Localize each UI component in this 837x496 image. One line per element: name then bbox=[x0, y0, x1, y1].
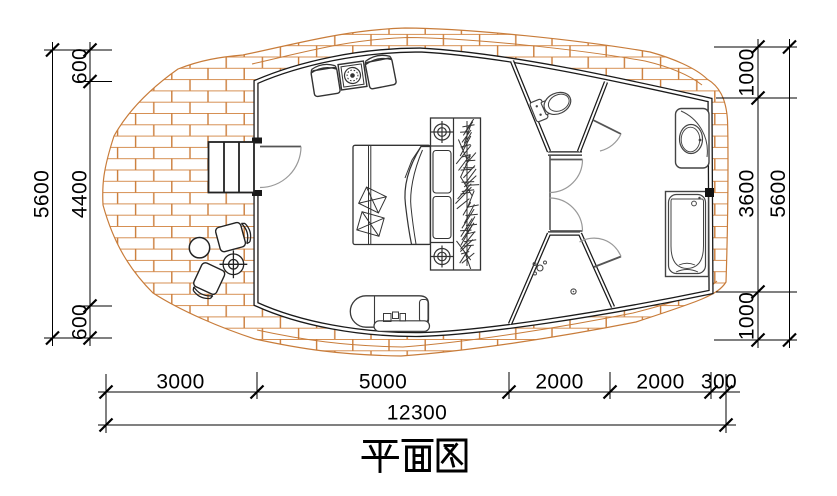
svg-text:5600: 5600 bbox=[30, 170, 53, 218]
svg-text:600: 600 bbox=[69, 48, 92, 84]
svg-text:1000: 1000 bbox=[736, 48, 759, 96]
svg-text:4400: 4400 bbox=[69, 170, 92, 218]
svg-text:3000: 3000 bbox=[156, 371, 204, 394]
svg-text:5000: 5000 bbox=[359, 371, 407, 394]
svg-text:2000: 2000 bbox=[636, 371, 684, 394]
svg-text:1000: 1000 bbox=[736, 292, 759, 340]
svg-text:600: 600 bbox=[69, 304, 92, 340]
svg-text:12300: 12300 bbox=[387, 402, 447, 425]
svg-text:5600: 5600 bbox=[767, 169, 790, 217]
svg-text:300: 300 bbox=[701, 371, 737, 394]
svg-text:3600: 3600 bbox=[736, 169, 759, 217]
svg-text:2000: 2000 bbox=[535, 371, 583, 394]
